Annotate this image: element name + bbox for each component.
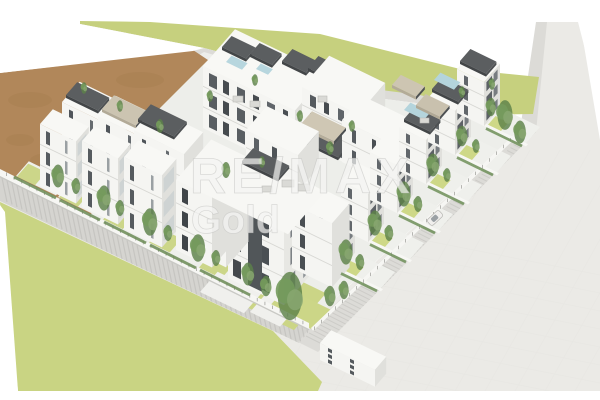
svg-text:RE/MAX: RE/MAX (190, 148, 414, 204)
svg-text:Gold: Gold (191, 199, 280, 242)
